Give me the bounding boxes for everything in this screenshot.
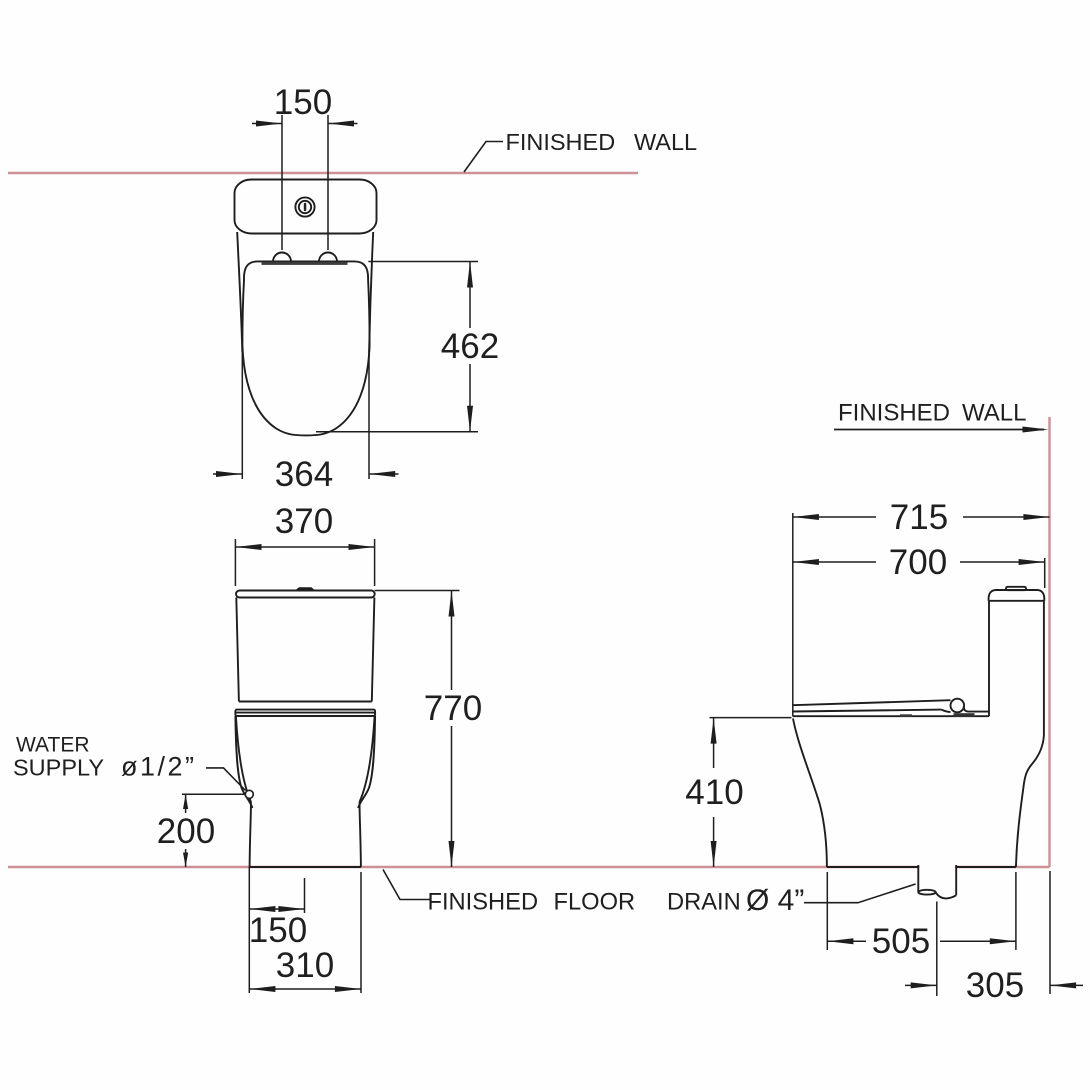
svg-text:WATER: WATER (16, 734, 90, 757)
svg-text:700: 700 (889, 543, 947, 582)
svg-text:ø1/2”: ø1/2” (121, 752, 197, 782)
svg-text:FINISHED: FINISHED (428, 890, 539, 916)
svg-text:310: 310 (276, 946, 334, 985)
svg-text:FINISHED: FINISHED (506, 129, 616, 155)
svg-text:364: 364 (275, 455, 333, 494)
svg-text:305: 305 (966, 966, 1024, 1005)
svg-text:WALL: WALL (962, 400, 1026, 427)
svg-text:770: 770 (424, 689, 482, 728)
svg-text:505: 505 (872, 922, 930, 961)
svg-text:SUPPLY: SUPPLY (13, 755, 104, 781)
svg-text:DRAIN: DRAIN (667, 890, 741, 916)
svg-text:150: 150 (274, 83, 332, 122)
svg-text:462: 462 (441, 327, 499, 366)
svg-text:FLOOR: FLOOR (554, 890, 636, 916)
svg-text:715: 715 (890, 498, 948, 537)
svg-text:Ø 4”: Ø 4” (746, 884, 804, 917)
svg-text:FINISHED: FINISHED (838, 400, 950, 427)
svg-text:WALL: WALL (634, 129, 697, 155)
svg-text:200: 200 (157, 812, 215, 851)
svg-text:410: 410 (685, 773, 743, 812)
svg-text:150: 150 (249, 911, 307, 950)
svg-text:370: 370 (275, 502, 333, 541)
